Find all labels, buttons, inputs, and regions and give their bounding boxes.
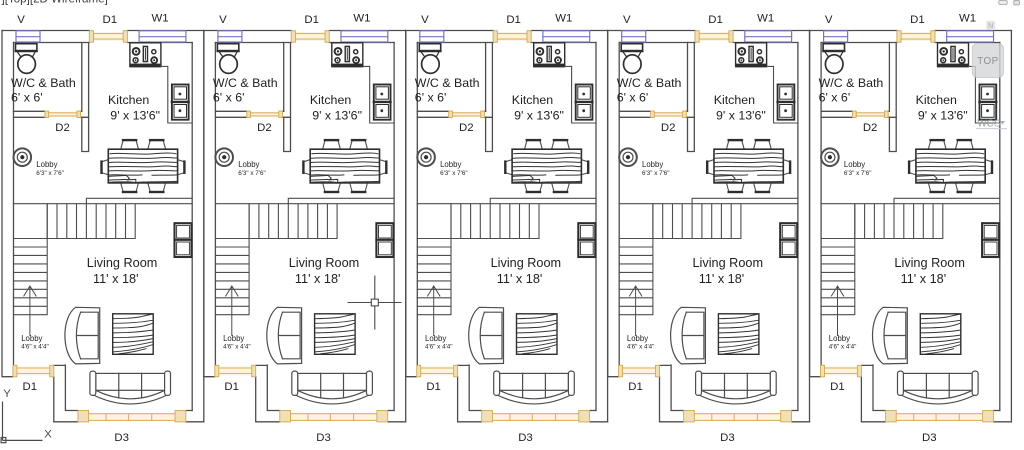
svg-text:4'6" x 4'4": 4'6" x 4'4" [425, 344, 453, 351]
svg-text:D3: D3 [114, 432, 129, 444]
svg-text:11' x 18': 11' x 18' [699, 272, 745, 286]
svg-text:Lobby: Lobby [36, 160, 57, 169]
svg-text:Living Room: Living Room [87, 256, 158, 270]
svg-text:9' x 13'6": 9' x 13'6" [716, 109, 766, 123]
svg-text:9' x 13'6": 9' x 13'6" [918, 109, 968, 123]
svg-text:W/C & Bath: W/C & Bath [819, 76, 884, 90]
svg-text:D1: D1 [506, 14, 521, 26]
svg-text:11' x 18': 11' x 18' [93, 272, 139, 286]
svg-text:Y: Y [3, 388, 11, 400]
svg-text:D3: D3 [518, 432, 533, 444]
svg-text:Living Room: Living Room [491, 256, 562, 270]
svg-text:D2: D2 [257, 122, 272, 134]
svg-text:X: X [44, 429, 52, 441]
svg-text:6'3" x 7'6": 6'3" x 7'6" [440, 170, 468, 177]
svg-text:Kitchen: Kitchen [310, 93, 351, 107]
svg-text:D2: D2 [661, 122, 676, 134]
svg-text:11' x 18': 11' x 18' [295, 272, 341, 286]
svg-text:4'6" x 4'4": 4'6" x 4'4" [223, 344, 251, 351]
svg-text:D1: D1 [224, 381, 239, 393]
svg-text:D1: D1 [708, 14, 723, 26]
svg-text:6' x 6': 6' x 6' [213, 90, 245, 104]
svg-text:D3: D3 [922, 432, 937, 444]
svg-text:Living Room: Living Room [894, 256, 965, 270]
svg-text:6' x 6': 6' x 6' [819, 90, 851, 104]
svg-text:6' x 6': 6' x 6' [11, 90, 43, 104]
svg-text:D2: D2 [863, 122, 878, 134]
svg-text:V: V [219, 14, 227, 26]
svg-text:Kitchen: Kitchen [714, 93, 755, 107]
svg-text:6'3" x 7'6": 6'3" x 7'6" [642, 170, 670, 177]
svg-text:V: V [17, 14, 25, 26]
svg-text:W1: W1 [959, 13, 976, 25]
svg-text:D1: D1 [426, 381, 441, 393]
svg-text:Living Room: Living Room [693, 256, 764, 270]
svg-text:Kitchen: Kitchen [916, 93, 957, 107]
svg-text:Kitchen: Kitchen [108, 93, 149, 107]
svg-text:N: N [988, 23, 993, 30]
svg-text:D1: D1 [830, 381, 845, 393]
svg-text:9' x 13'6": 9' x 13'6" [312, 109, 362, 123]
svg-text:6'3" x 7'6": 6'3" x 7'6" [238, 170, 266, 177]
svg-text:D2: D2 [459, 122, 474, 134]
svg-text:Lobby: Lobby [440, 160, 461, 169]
svg-text:9' x 13'6": 9' x 13'6" [514, 109, 564, 123]
svg-text:Lobby: Lobby [425, 334, 446, 343]
svg-text:D1: D1 [23, 381, 38, 393]
svg-text:WCS: WCS [977, 118, 1001, 129]
svg-text:][Top][2D Wireframe]: ][Top][2D Wireframe] [2, 0, 108, 5]
svg-text:11' x 18': 11' x 18' [497, 272, 543, 286]
svg-text:Kitchen: Kitchen [512, 93, 553, 107]
svg-text:6'3" x 7'6": 6'3" x 7'6" [844, 170, 872, 177]
svg-text:Lobby: Lobby [627, 334, 648, 343]
svg-text:Lobby: Lobby [21, 334, 42, 343]
svg-text:W/C & Bath: W/C & Bath [11, 76, 76, 90]
svg-text:W1: W1 [757, 13, 774, 25]
svg-text:W1: W1 [151, 13, 168, 25]
svg-text:11' x 18': 11' x 18' [901, 272, 947, 286]
svg-text:6' x 6': 6' x 6' [617, 90, 649, 104]
svg-text:4'6" x 4'4": 4'6" x 4'4" [627, 344, 655, 351]
svg-text:Living Room: Living Room [289, 256, 360, 270]
svg-text:Lobby: Lobby [642, 160, 663, 169]
svg-text:D1: D1 [304, 14, 319, 26]
svg-text:Lobby: Lobby [844, 160, 865, 169]
svg-text:4'6" x 4'4": 4'6" x 4'4" [21, 344, 49, 351]
svg-text:V: V [825, 14, 833, 26]
svg-text:D3: D3 [720, 432, 735, 444]
svg-text:6'3" x 7'6": 6'3" x 7'6" [36, 170, 64, 177]
svg-text:9' x 13'6": 9' x 13'6" [110, 109, 160, 123]
svg-text:Lobby: Lobby [829, 334, 850, 343]
svg-text:D1: D1 [103, 14, 118, 26]
svg-text:V: V [421, 14, 429, 26]
svg-text:W1: W1 [555, 13, 572, 25]
svg-text:6' x 6': 6' x 6' [415, 90, 447, 104]
svg-text:W/C & Bath: W/C & Bath [213, 76, 278, 90]
svg-text:W/C & Bath: W/C & Bath [617, 76, 682, 90]
svg-text:D3: D3 [316, 432, 331, 444]
svg-text:W/C & Bath: W/C & Bath [415, 76, 480, 90]
svg-text:D1: D1 [910, 14, 925, 26]
svg-text:D1: D1 [628, 381, 643, 393]
svg-text:Lobby: Lobby [238, 160, 259, 169]
svg-text:D2: D2 [55, 122, 70, 134]
svg-text:Lobby: Lobby [223, 334, 244, 343]
svg-text:TOP: TOP [977, 56, 998, 67]
svg-text:4'6" x 4'4": 4'6" x 4'4" [829, 344, 857, 351]
svg-text:V: V [623, 14, 631, 26]
svg-text:W1: W1 [353, 13, 370, 25]
